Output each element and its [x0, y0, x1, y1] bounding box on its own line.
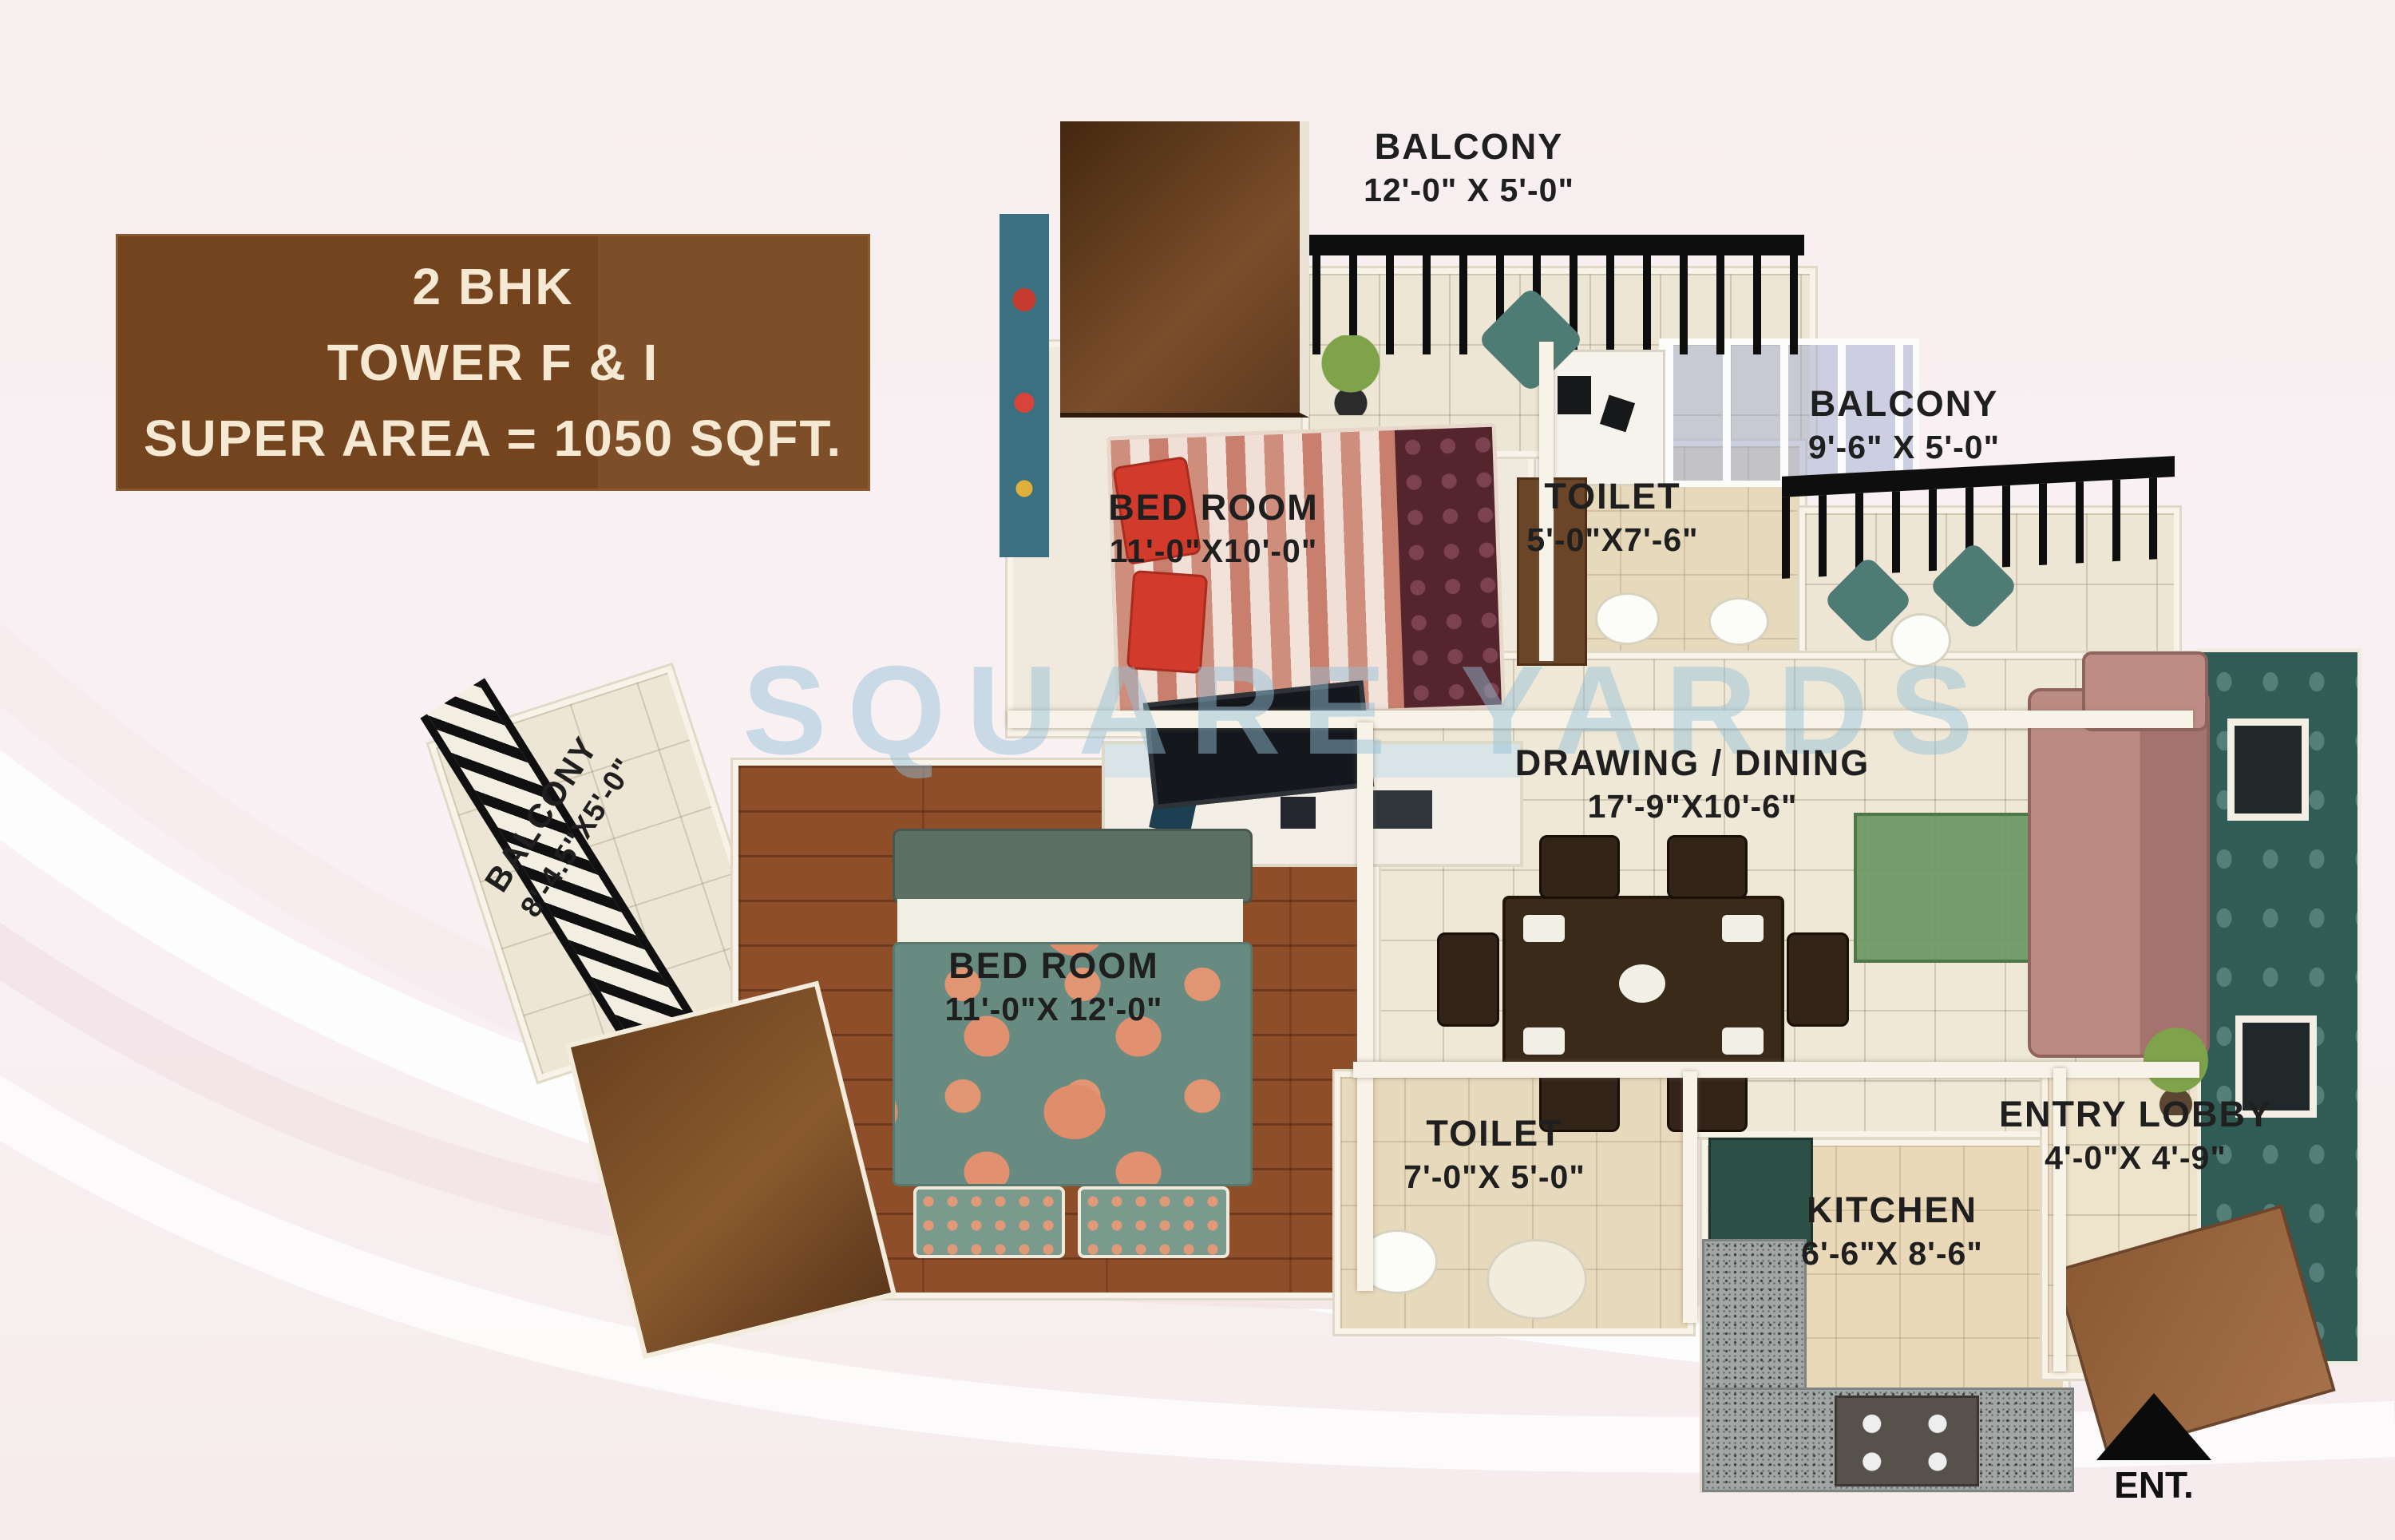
plate-icon: [1523, 1027, 1565, 1055]
room-label-balcony-top: BALCONY 12'-0" X 5'-0": [1301, 125, 1637, 211]
dining-table-icon: [1502, 896, 1784, 1074]
room-label-toilet-bottom: TOILET 7'-0"X 5'-0": [1327, 1111, 1662, 1198]
room-dims: 5'-0"X7'-6": [1445, 519, 1780, 560]
bed-pillow: [1078, 1186, 1229, 1258]
room-label-bedroom-left: BED ROOM 11'-0"X 12'-0": [886, 944, 1221, 1030]
bed-pillow: [913, 1186, 1065, 1258]
centerpiece-icon: [1619, 964, 1665, 1003]
room-name: BALCONY: [1736, 382, 2072, 426]
wall: [1357, 722, 1373, 1291]
room-name: TOILET: [1327, 1111, 1662, 1156]
dining-chair-icon: [1539, 835, 1620, 899]
room-label-balcony-right: BALCONY 9'-6" X 5'-0": [1736, 382, 2072, 468]
dining-chair-icon: [1667, 1068, 1748, 1132]
room-name: TOILET: [1445, 474, 1780, 519]
wall-art-strip: [1000, 214, 1049, 557]
stove-icon: [1835, 1396, 1979, 1487]
decor-box-icon: [1281, 797, 1316, 829]
room-label-toilet-top: TOILET 5'-0"X7'-6": [1445, 474, 1780, 560]
sofa-icon: [2028, 688, 2210, 1058]
room-dims: 9'-6" X 5'-0": [1736, 426, 2072, 468]
rug-icon: [1854, 813, 2032, 963]
room-dims: 7'-0"X 5'-0": [1327, 1156, 1662, 1198]
bed-left-icon: [893, 829, 1248, 1248]
room-name: KITCHEN: [1724, 1188, 2060, 1233]
decor-frame-icon: [1558, 376, 1591, 414]
dining-chair-icon: [1437, 932, 1499, 1027]
room-dims: 4'-0"X 4'-9": [1968, 1137, 2303, 1178]
room-dims: 12'-0" X 5'-0": [1301, 169, 1637, 211]
title-line-1: 2 BHK: [118, 249, 868, 325]
room-label-entry-lobby: ENTRY LOBBY 4'-0"X 4'-9": [1968, 1092, 2303, 1178]
dining-chair-icon: [1667, 835, 1748, 899]
picture-frame-icon: [2227, 719, 2309, 821]
bed-headboard: [893, 829, 1253, 904]
decor-frame-icon: [1600, 395, 1635, 433]
wall: [1353, 1062, 2199, 1078]
room-name: BED ROOM: [886, 944, 1221, 988]
room-dims: 11'-0"X 12'-0": [886, 988, 1221, 1030]
entrance-arrow-icon: [2096, 1393, 2211, 1460]
wall: [1683, 1071, 1697, 1323]
room-dims: 11'-0"X10'-0": [1046, 530, 1381, 572]
title-line-2: TOWER F & I: [118, 325, 868, 401]
decor-box-icon: [1368, 790, 1432, 829]
title-line-3: SUPER AREA = 1050 SQFT.: [118, 401, 868, 477]
plate-icon: [1523, 915, 1565, 942]
room-dims: 6'-6"X 8'-6": [1724, 1233, 2060, 1274]
plant-icon: [1319, 335, 1383, 415]
bed-sheet: [897, 899, 1243, 945]
title-box: 2 BHK TOWER F & I SUPER AREA = 1050 SQFT…: [116, 234, 870, 491]
room-name: BED ROOM: [1046, 485, 1381, 530]
vanity-unit-white: [1541, 350, 1665, 486]
dining-chair-icon: [1787, 932, 1849, 1027]
railing-bar: [1276, 235, 1804, 255]
room-label-bedroom-top: BED ROOM 11'-0"X10'-0": [1046, 485, 1381, 572]
entrance-label: ENT.: [2074, 1463, 2234, 1506]
room-label-kitchen: KITCHEN 6'-6"X 8'-6": [1724, 1188, 2060, 1274]
plate-icon: [1722, 915, 1764, 942]
wardrobe-top-icon: [1060, 121, 1309, 418]
plate-icon: [1722, 1027, 1764, 1055]
room-label-drawing-dining: DRAWING / DINING 17'-9"X10'-6": [1509, 741, 1876, 827]
shower-tray-icon: [1486, 1239, 1587, 1320]
wc-icon: [1595, 592, 1660, 645]
room-name: DRAWING / DINING: [1509, 741, 1876, 786]
room-name: ENTRY LOBBY: [1968, 1092, 2303, 1137]
room-dims: 17'-9"X10'-6": [1509, 786, 1876, 827]
room-name: BALCONY: [1301, 125, 1637, 169]
